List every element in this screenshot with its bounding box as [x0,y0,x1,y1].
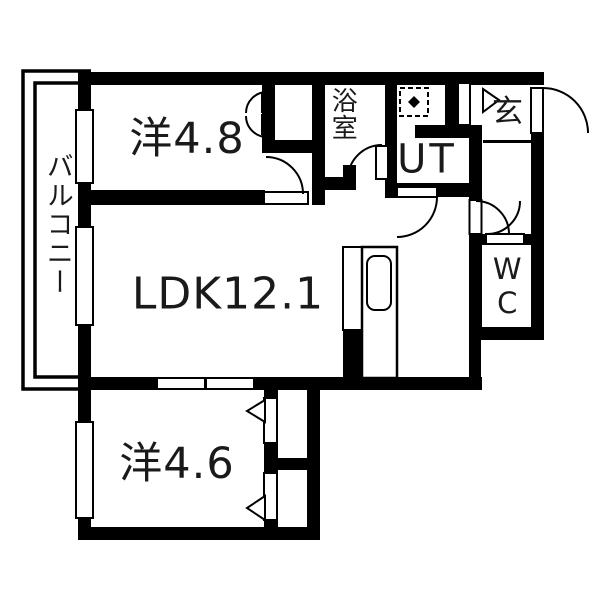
wall-segment [437,183,482,197]
room-label-ldk: LDK12.1 [132,273,324,318]
room-label-bath: 浴室 [329,87,356,141]
wall-segment [312,72,325,205]
bath-door-leaf [376,146,388,179]
window-bedroom1 [76,110,93,183]
sliding-door-panel-right [206,378,254,389]
wall-segment [385,85,397,198]
kitchen-counter [343,247,397,378]
ut-door-arc [397,197,437,237]
wall-segment [78,527,320,540]
closet-leaf [261,92,274,113]
shoe-closet-door-leaf [458,83,470,125]
room-label-entrance: 玄 [492,97,524,129]
wall-segment [307,377,320,540]
bedroom1-door-leaf [264,192,308,204]
entry-door-leaf [531,88,543,133]
wall-segment [264,390,278,398]
closet-triangle-upper [247,400,265,422]
room-label-utility: UT [397,140,457,181]
entrance-step-line [483,140,531,143]
wall-segment [445,85,457,128]
wall-segment [278,458,307,470]
wall-segment [91,190,265,205]
entry-door-arc [543,88,588,133]
sliding-door-panel-left [157,378,205,389]
window-ldk [76,227,93,325]
bedroom1-door-arc [266,157,303,194]
wc-door-leaf [486,234,524,244]
closet-triangle-lower [247,496,265,520]
room-label-balcony: バルコニー [43,152,71,297]
washing-machine-space [400,88,428,116]
kitchen-partition [343,247,362,330]
kitchen-sink [367,256,391,310]
closet-leaf [261,114,274,135]
wall-segment [264,520,278,527]
wall-segment [469,340,481,390]
kitchen-wall-stub [343,330,362,378]
window-bedroom2 [76,422,93,518]
room-label-bedroom2: 洋4.6 [119,443,234,487]
wall-segment [262,140,317,153]
wall-segment [255,377,310,390]
room-label-toilet: WC [491,252,523,320]
floorplan-canvas: バルコニー 洋4.8 LDK12.1 洋4.6 浴室 UT 玄 WC [0,0,600,600]
wall-segment [78,72,544,85]
room-label-bedroom1: 洋4.8 [129,118,244,162]
wall-segment [264,443,278,473]
windows [76,110,93,518]
wall-segment [469,234,482,340]
wall-segment [91,377,157,390]
ldk-hall-door-leaf [470,200,482,234]
ut-door-leaf [397,187,437,197]
